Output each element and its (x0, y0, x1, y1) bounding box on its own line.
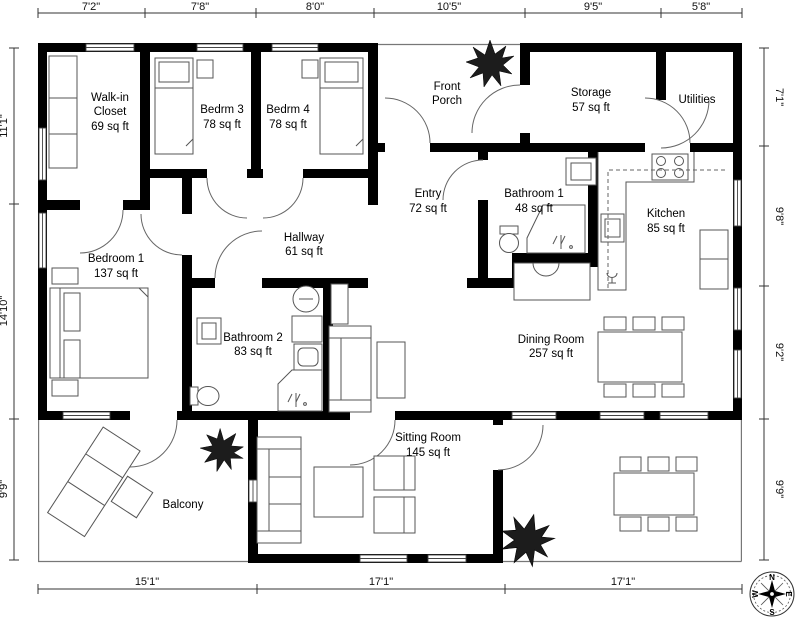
dimension-top: 7'2" 7'8" 8'0" 10'5" 9'5" 5'8" (38, 1, 742, 18)
dining-table-set (598, 317, 684, 397)
dim-top-3: 8'0" (306, 1, 324, 13)
dim-top-1: 7'2" (82, 1, 100, 13)
label-bathroom1: Bathroom 1 (504, 188, 563, 200)
plant-porch (466, 40, 514, 87)
compass-s: S (769, 608, 775, 617)
dim-top-4: 10'5" (437, 1, 461, 13)
label-storage: Storage (571, 87, 611, 99)
floor-plan-canvas: 7'2" 7'8" 8'0" 10'5" 9'5" 5'8" 11'1" 14'… (0, 0, 800, 619)
label-hallway-area: 61 sq ft (285, 246, 324, 258)
label-walk-in-closet-1: Walk-in (91, 92, 129, 104)
dim-top-5: 9'5" (584, 1, 602, 13)
compass-e: E (784, 591, 793, 597)
label-walk-in-closet-area: 69 sq ft (91, 121, 130, 133)
label-bathroom2-area: 83 sq ft (234, 346, 273, 358)
wardrobe-closet (49, 56, 77, 168)
label-entry: Entry (415, 188, 442, 200)
dimension-left: 11'1" 14'10" 9'9" (0, 48, 19, 560)
label-bedrm3: Bedrm 3 (200, 104, 243, 116)
dim-left-2: 14'10" (0, 296, 10, 327)
label-sitting-room-area: 145 sq ft (406, 447, 451, 459)
balcony-loungers (48, 427, 153, 537)
label-front-porch-1: Front (434, 81, 462, 93)
label-entry-area: 72 sq ft (409, 203, 448, 215)
dining-sofa (329, 284, 405, 412)
label-balcony: Balcony (163, 499, 204, 511)
dim-left-3: 9'9" (0, 480, 10, 498)
dim-bottom-2: 17'1" (369, 576, 393, 588)
dimension-bottom: 15'1" 17'1" 17'1" (38, 576, 742, 594)
desk-dining (514, 263, 590, 300)
dim-right-4: 9'9" (773, 480, 785, 498)
label-hallway: Hallway (284, 232, 325, 244)
dim-bottom-1: 15'1" (135, 576, 159, 588)
dim-right-1: 7'1" (773, 88, 785, 106)
label-bedrm4: Bedrm 4 (266, 104, 310, 116)
label-front-porch-2: Porch (432, 95, 462, 107)
dim-bottom-3: 17'1" (611, 576, 635, 588)
compass-w: W (751, 590, 760, 598)
label-kitchen: Kitchen (647, 208, 685, 220)
plant-balcony (192, 420, 252, 480)
label-dining-room-area: 257 sq ft (529, 348, 574, 360)
kitchen-counter (598, 152, 728, 290)
terrace-table-set (614, 457, 697, 531)
label-bedroom1: Bedroom 1 (88, 253, 144, 265)
label-bedrm4-area: 78 sq ft (269, 119, 308, 131)
sitting-room-furniture (257, 437, 415, 543)
dim-right-3: 9'2" (773, 343, 785, 361)
label-bedrm3-area: 78 sq ft (203, 119, 242, 131)
label-walk-in-closet-2: Closet (94, 106, 127, 118)
label-utilities: Utilities (678, 94, 715, 106)
bed-bedroom4 (302, 58, 363, 154)
label-bathroom1-area: 48 sq ft (515, 203, 554, 215)
dim-left-1: 11'1" (0, 114, 10, 138)
label-dining-room: Dining Room (518, 334, 584, 346)
label-storage-area: 57 sq ft (572, 102, 611, 114)
dim-right-2: 9'8" (773, 207, 785, 225)
label-bedroom1-area: 137 sq ft (94, 268, 139, 280)
floor-plan: 7'2" 7'8" 8'0" 10'5" 9'5" 5'8" 11'1" 14'… (0, 0, 800, 619)
bed-bedroom1 (50, 268, 148, 396)
compass-n: N (769, 573, 775, 582)
label-bathroom2: Bathroom 2 (223, 332, 282, 344)
compass-rose: N E S W (750, 572, 794, 617)
label-kitchen-area: 85 sq ft (647, 223, 686, 235)
label-sitting-room: Sitting Room (395, 432, 461, 444)
dim-top-2: 7'8" (191, 1, 209, 13)
dim-top-6: 5'8" (692, 1, 710, 13)
dimension-right: 7'1" 9'8" 9'2" 9'9" (759, 48, 785, 560)
